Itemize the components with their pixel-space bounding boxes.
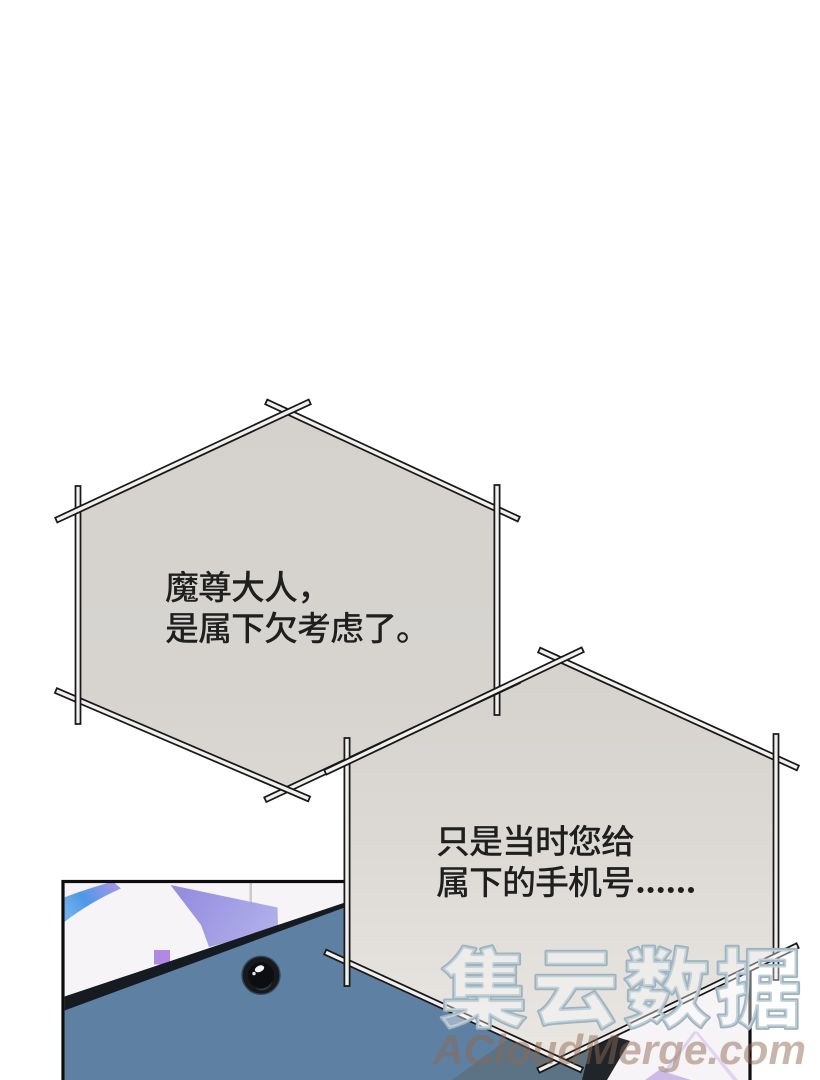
svg-text:ACloudMerge.com: ACloudMerge.com <box>432 1026 806 1073</box>
